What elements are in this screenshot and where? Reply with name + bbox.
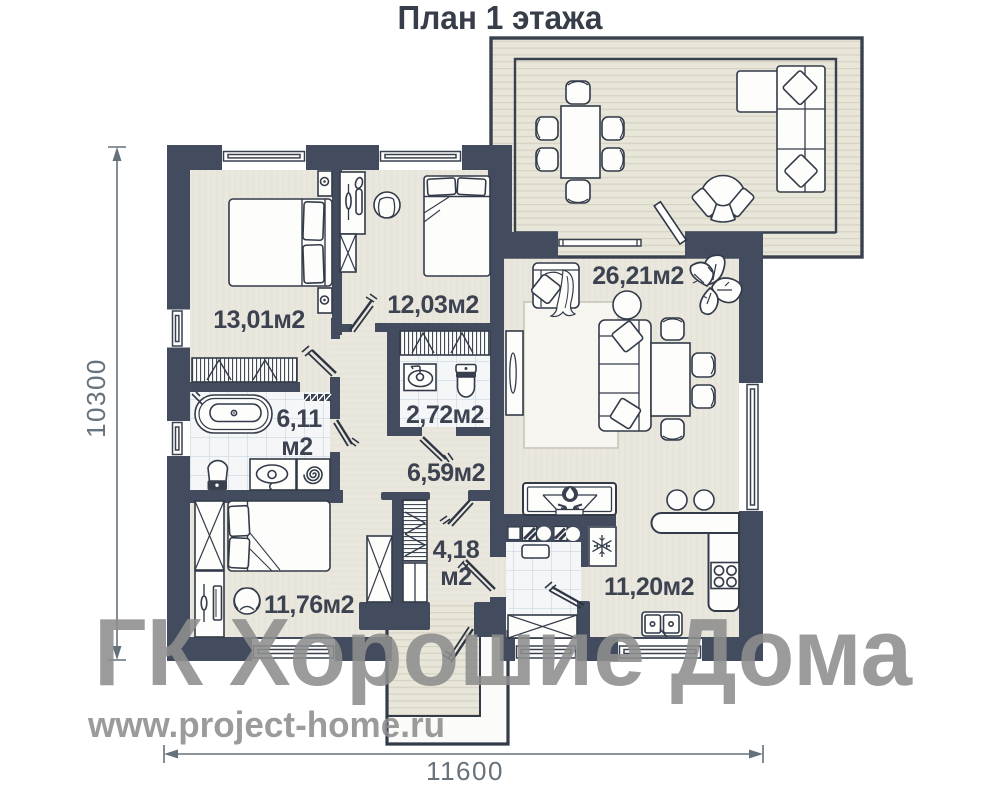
svg-text:План 1 этажа: План 1 этажа <box>398 0 604 36</box>
svg-text:11,20м2: 11,20м2 <box>604 573 694 601</box>
svg-text:ГК Хорошие Дома: ГК Хорошие Дома <box>94 599 913 706</box>
svg-text:4,18: 4,18 <box>433 536 480 564</box>
svg-text:11600: 11600 <box>426 756 504 785</box>
svg-text:10300: 10300 <box>81 358 111 438</box>
svg-text:www.project-home.ru: www.project-home.ru <box>87 704 445 745</box>
svg-text:6,11: 6,11 <box>276 405 322 433</box>
svg-text:6,59м2: 6,59м2 <box>407 459 485 487</box>
svg-text:м2: м2 <box>281 433 312 461</box>
svg-text:2,72м2: 2,72м2 <box>406 401 484 429</box>
svg-text:12,03м2: 12,03м2 <box>387 291 478 319</box>
svg-text:13,01м2: 13,01м2 <box>213 306 304 334</box>
svg-text:26,21м2: 26,21м2 <box>592 262 683 290</box>
svg-text:м2: м2 <box>440 563 471 591</box>
